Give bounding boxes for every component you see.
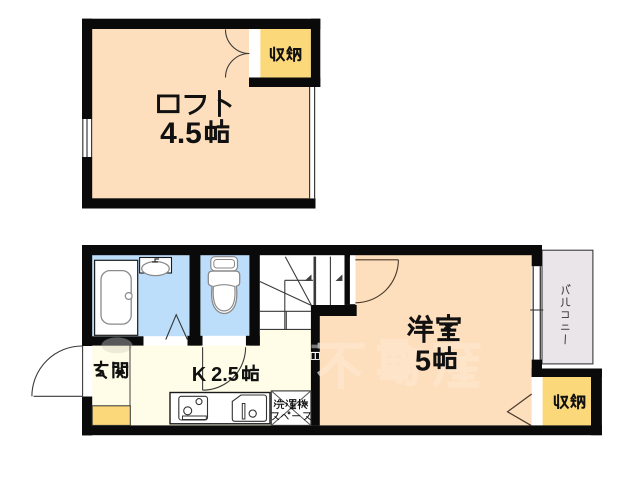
svg-text:2.5: 2.5 (211, 364, 239, 386)
svg-text:5: 5 (415, 346, 431, 378)
svg-text:K: K (192, 364, 207, 386)
svg-text:4.5: 4.5 (160, 117, 202, 150)
